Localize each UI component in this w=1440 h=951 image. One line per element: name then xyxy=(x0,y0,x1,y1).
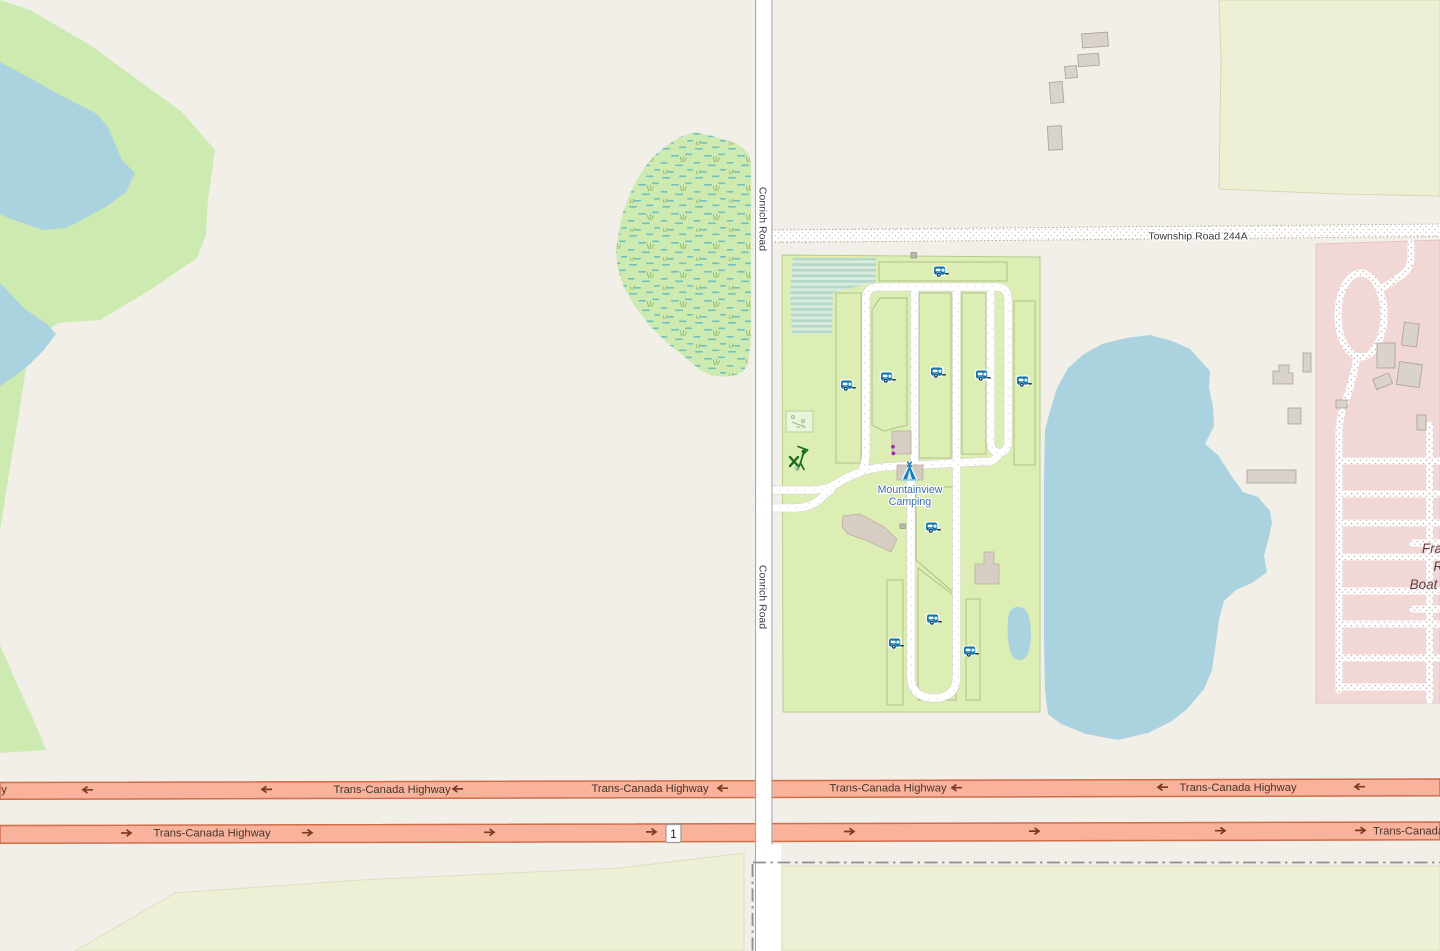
svg-text:RV &: RV & xyxy=(1433,559,1440,574)
svg-text:Conrich Road: Conrich Road xyxy=(757,187,769,251)
svg-text:1: 1 xyxy=(670,829,676,841)
svg-text:Trans-Canada Highway: Trans-Canada Highway xyxy=(1179,782,1297,794)
svg-text:y: y xyxy=(1,784,7,796)
svg-text:Trans-Canada Highway: Trans-Canada Highway xyxy=(591,783,709,795)
svg-text:Mountainview: Mountainview xyxy=(878,484,943,496)
svg-text:Township Road 244A: Township Road 244A xyxy=(1148,231,1247,243)
svg-text:Camping: Camping xyxy=(889,496,932,508)
svg-text:Conrich Road: Conrich Road xyxy=(757,565,769,629)
svg-text:Trans-Canada Highway: Trans-Canada Highway xyxy=(333,784,451,796)
svg-text:Trans-Canada Hig: Trans-Canada Hig xyxy=(1373,825,1440,837)
svg-text:Frankie's: Frankie's xyxy=(1422,541,1440,556)
svg-text:Boat Storage: Boat Storage xyxy=(1410,577,1440,592)
svg-text:Trans-Canada Highway: Trans-Canada Highway xyxy=(153,828,271,840)
svg-text:Trans-Canada Highway: Trans-Canada Highway xyxy=(829,783,947,795)
